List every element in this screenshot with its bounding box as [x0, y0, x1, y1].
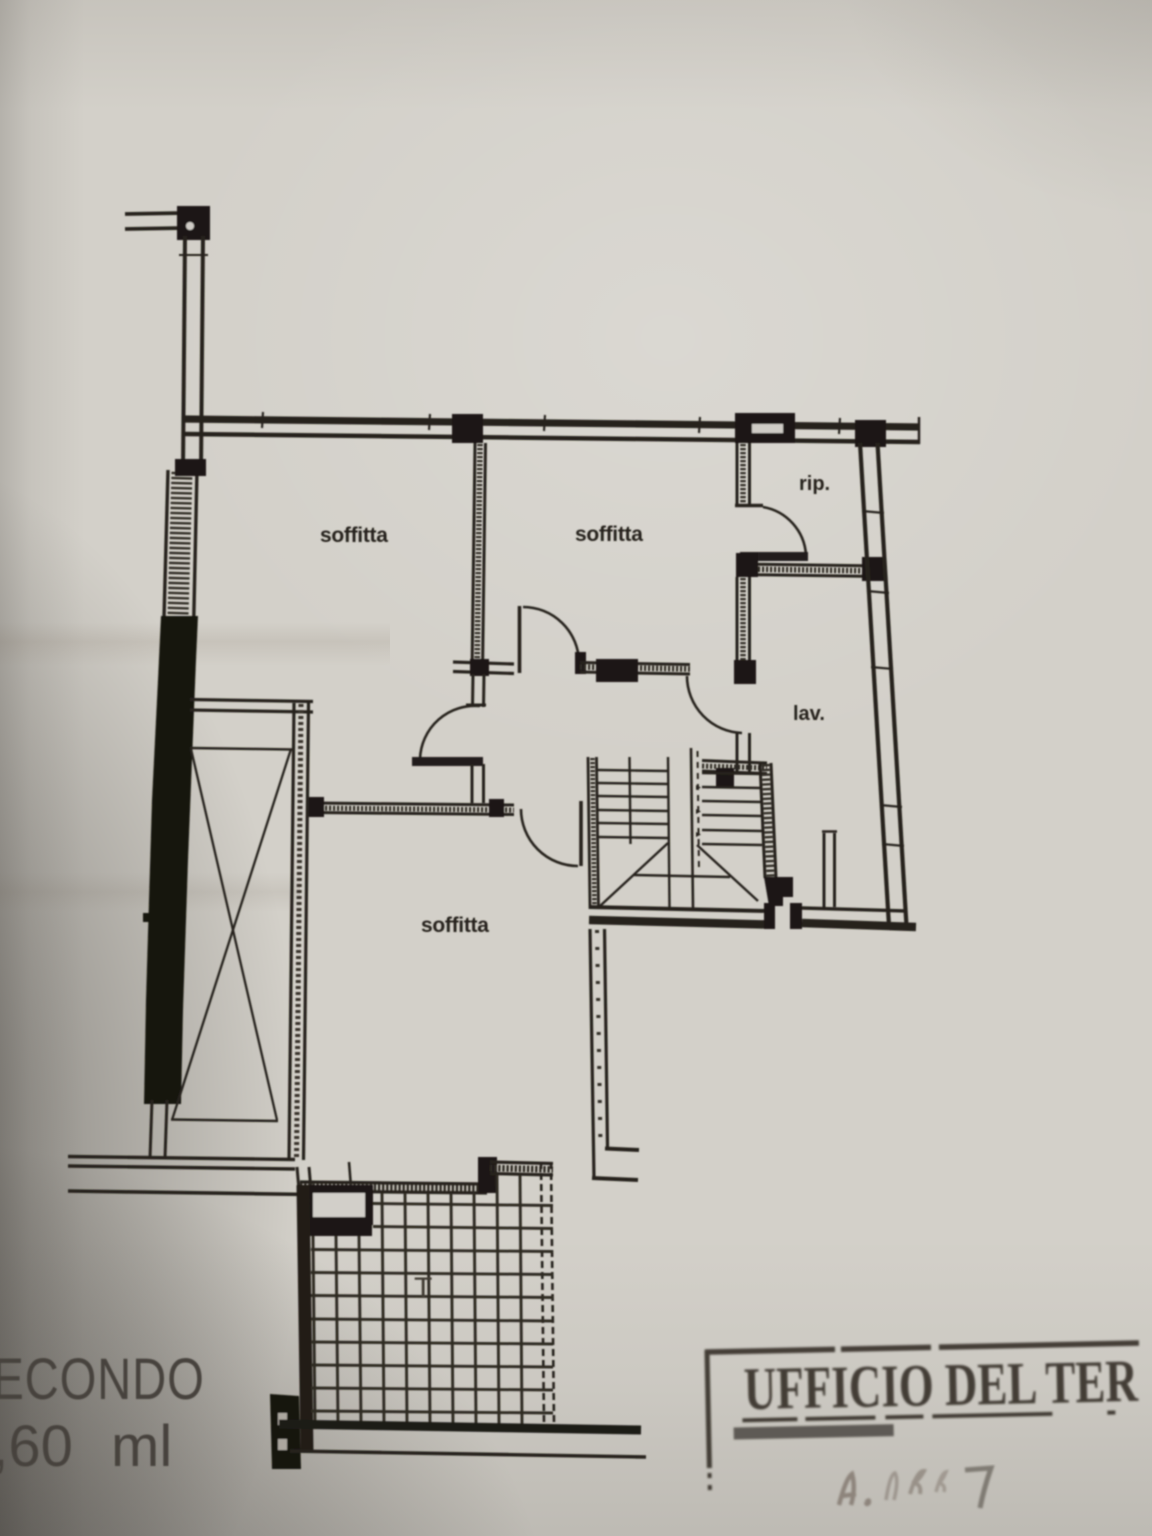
svg-text:T: T — [414, 1272, 432, 1305]
svg-text:soffitta: soffitta — [575, 523, 643, 546]
svg-text:soffitta: soffitta — [421, 914, 489, 937]
svg-text:soffitta: soffitta — [320, 524, 388, 547]
svg-text:SECONDO: SECONDO — [0, 1347, 205, 1412]
svg-text:lav.: lav. — [793, 703, 825, 725]
svg-text:UFFICIO DEL TER: UFFICIO DEL TER — [743, 1349, 1139, 1423]
svg-text:2,60 ml: 2,60 ml — [0, 1414, 172, 1479]
svg-text:rip.: rip. — [799, 473, 830, 495]
